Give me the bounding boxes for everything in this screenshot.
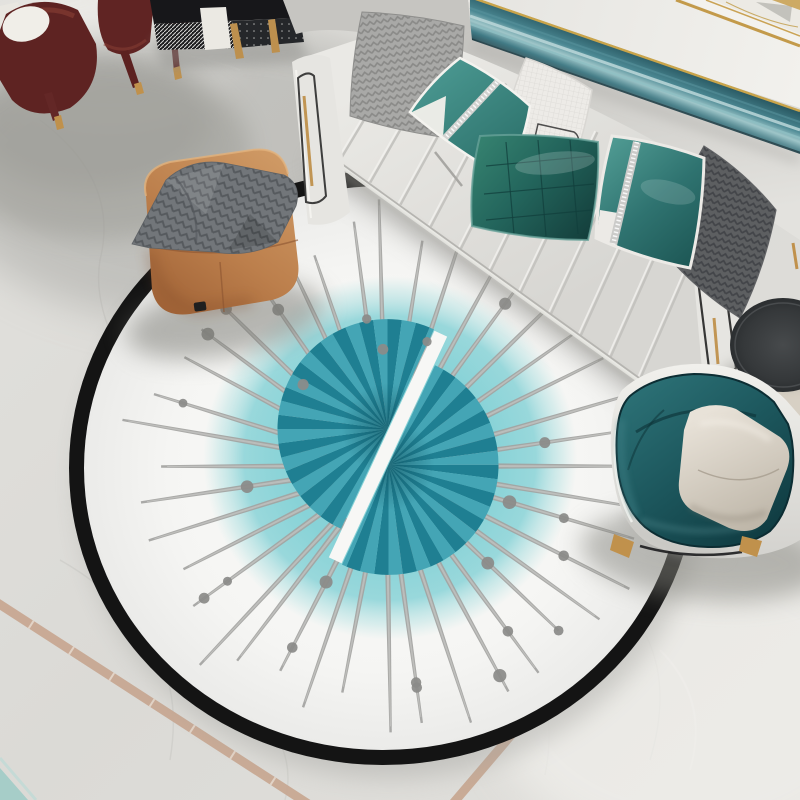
rug-dot [559,513,569,523]
rug-dot [481,557,494,570]
rug-dot [554,626,564,636]
rug-dot [287,642,298,653]
rug-dot [539,437,550,448]
living-room-top-view: Top-down view of a modern living room: a… [0,0,800,800]
rug-dot [199,593,210,604]
sideboard [150,0,310,70]
sideboard-pillar [200,7,231,50]
rug-dot [362,314,371,323]
rug-dot [558,551,569,562]
rug-dot [241,480,254,493]
rug-dot [503,626,514,637]
rug-dot [179,399,188,408]
rug-dot [503,495,517,509]
rug-dot [223,577,232,586]
rug-dot [493,669,506,682]
ottoman [132,150,298,315]
ottoman-tab [194,301,207,312]
rug-dot [411,677,421,687]
rug-dot [422,337,431,346]
rug-dot [320,576,333,589]
rug-dot [378,344,389,355]
rug-dot [298,379,309,390]
scene-svg [0,0,800,800]
pillow-green-satin [471,135,598,240]
pillow-body [471,135,598,240]
